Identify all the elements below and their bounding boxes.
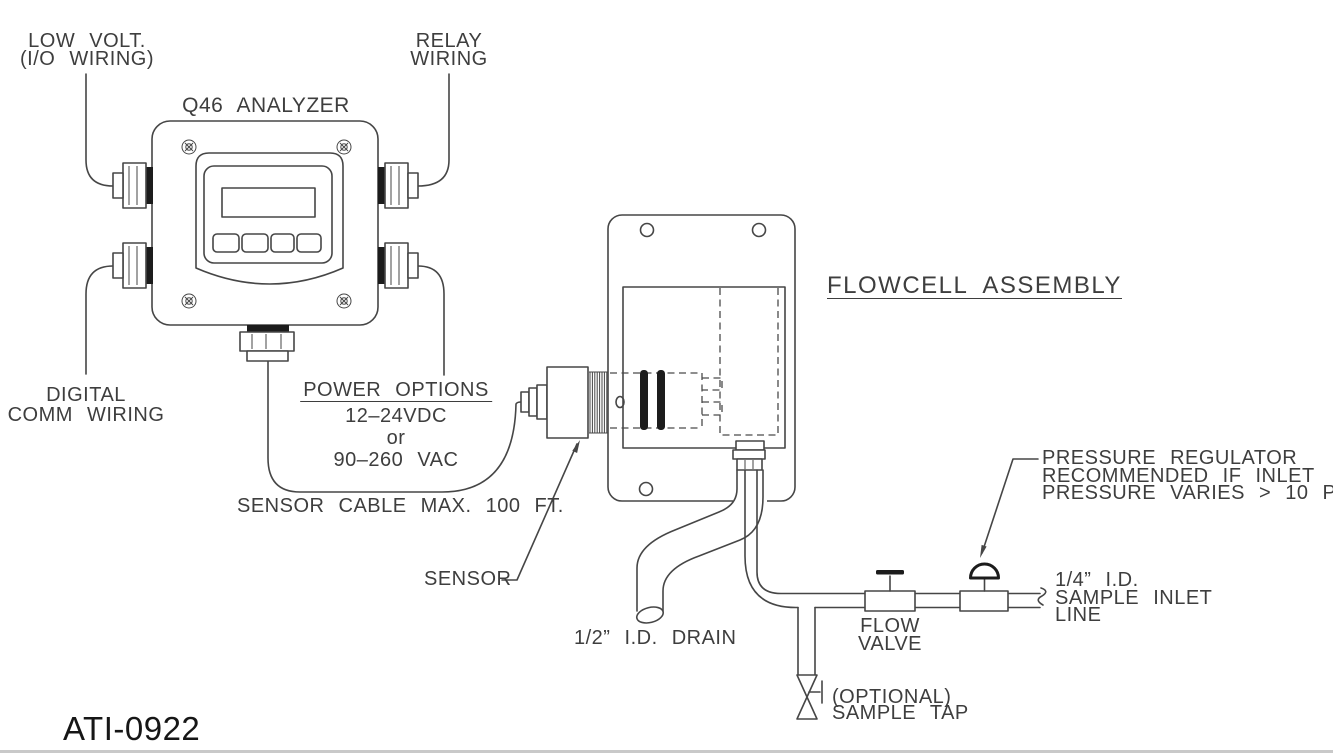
document-number: ATI-0922 xyxy=(63,712,200,746)
label-line: VALVE xyxy=(858,635,922,653)
label-line: SENSOR xyxy=(424,570,511,588)
label-line: or xyxy=(300,427,492,449)
label-low-voltage-wiring: LOW VOLT. (I/O WIRING) xyxy=(20,32,154,68)
label-line: LINE xyxy=(1055,607,1212,625)
document-number-text: ATI-0922 xyxy=(63,712,200,746)
flowcell-bottom-fitting xyxy=(733,441,765,470)
label-line: COMM WIRING xyxy=(8,405,165,425)
flowcell-title-text: FLOWCELL ASSEMBLY xyxy=(827,277,1122,295)
label-sensor-cable: SENSOR CABLE MAX. 100 FT. xyxy=(237,497,564,515)
label-flow-valve: FLOW VALVE xyxy=(858,617,922,653)
label-line: PRESSURE VARIES > 10 PSI xyxy=(1042,485,1333,503)
sensor-connector xyxy=(521,392,529,412)
sensor-hidden-bore xyxy=(610,373,722,428)
sensor-threads xyxy=(589,372,608,433)
sensor-orings xyxy=(640,370,665,430)
label-pressure-regulator-note: PRESSURE REGULATOR RECOMMENDED IF INLET … xyxy=(1042,450,1333,503)
label-line: WIRING xyxy=(410,50,487,68)
label-digital-comm-wiring: DIGITAL COMM WIRING xyxy=(8,385,165,425)
sensor-assembly xyxy=(521,367,608,438)
regulator-dome xyxy=(971,564,999,578)
label-sensor: SENSOR xyxy=(424,570,511,588)
flowcell-hidden-body xyxy=(720,288,778,435)
cable-gland-right-bottom xyxy=(378,243,418,288)
cable-gland-left-bottom xyxy=(113,243,153,288)
label-flowcell-title: FLOWCELL ASSEMBLY xyxy=(827,277,1122,299)
label-drain: 1/2” I.D. DRAIN xyxy=(574,629,736,647)
page-rule xyxy=(0,750,1333,753)
label-sample-inlet: 1/4” I.D. SAMPLE INLET LINE xyxy=(1055,572,1212,625)
leader-relay xyxy=(418,74,449,186)
leader-power xyxy=(418,266,444,375)
pressure-regulator-symbol xyxy=(960,564,1008,611)
cable-gland-bottom xyxy=(240,325,294,361)
mounting-hole xyxy=(641,224,654,237)
label-line: 90–260 VAC xyxy=(300,449,492,471)
mounting-hole xyxy=(753,224,766,237)
cable-gland-right-top xyxy=(378,163,418,208)
sensor-body xyxy=(547,367,588,438)
sensor-connector xyxy=(537,385,547,419)
power-options-title: POWER OPTIONS xyxy=(300,381,492,402)
sample-inlet-line xyxy=(745,470,1046,608)
label-line: 12–24VDC xyxy=(300,405,492,427)
label-line: SAMPLE TAP xyxy=(832,705,969,721)
cable-gland-left-top xyxy=(113,163,153,208)
label-relay-wiring: RELAY WIRING xyxy=(410,32,487,68)
flowcell-assembly xyxy=(608,215,795,506)
drain-open-end xyxy=(635,604,665,625)
label-line: 1/2” I.D. DRAIN xyxy=(574,629,736,647)
label-line: DIGITAL xyxy=(8,385,165,405)
label-sample-tap: (OPTIONAL) SAMPLE TAP xyxy=(832,689,969,721)
drain-tube xyxy=(635,470,763,626)
flow-valve-symbol xyxy=(865,570,915,611)
sample-tap-valve xyxy=(797,608,822,720)
pipe-break xyxy=(1038,588,1046,605)
analyzer-title-text: Q46 ANALYZER xyxy=(182,97,350,115)
diagram-page: LOW VOLT. (I/O WIRING) RELAY WIRING Q46 … xyxy=(0,0,1333,754)
regulator-leader-arrow xyxy=(980,459,1038,558)
label-analyzer-title: Q46 ANALYZER xyxy=(182,97,350,115)
regulator-body xyxy=(960,591,1008,611)
flow-valve-body xyxy=(865,591,915,611)
label-line: (I/O WIRING) xyxy=(20,50,154,68)
flowcell-mounting-plate xyxy=(608,215,795,501)
label-line: SENSOR CABLE MAX. 100 FT. xyxy=(237,497,564,515)
label-power-options: POWER OPTIONS 12–24VDC or 90–260 VAC xyxy=(300,381,492,471)
analyzer-faceplate xyxy=(196,153,343,284)
flow-valve-handle xyxy=(876,570,904,575)
sensor-connector xyxy=(529,388,537,416)
leader-low-volt xyxy=(86,74,113,186)
mounting-hole xyxy=(640,483,653,496)
leader-digital-comm xyxy=(86,266,113,374)
